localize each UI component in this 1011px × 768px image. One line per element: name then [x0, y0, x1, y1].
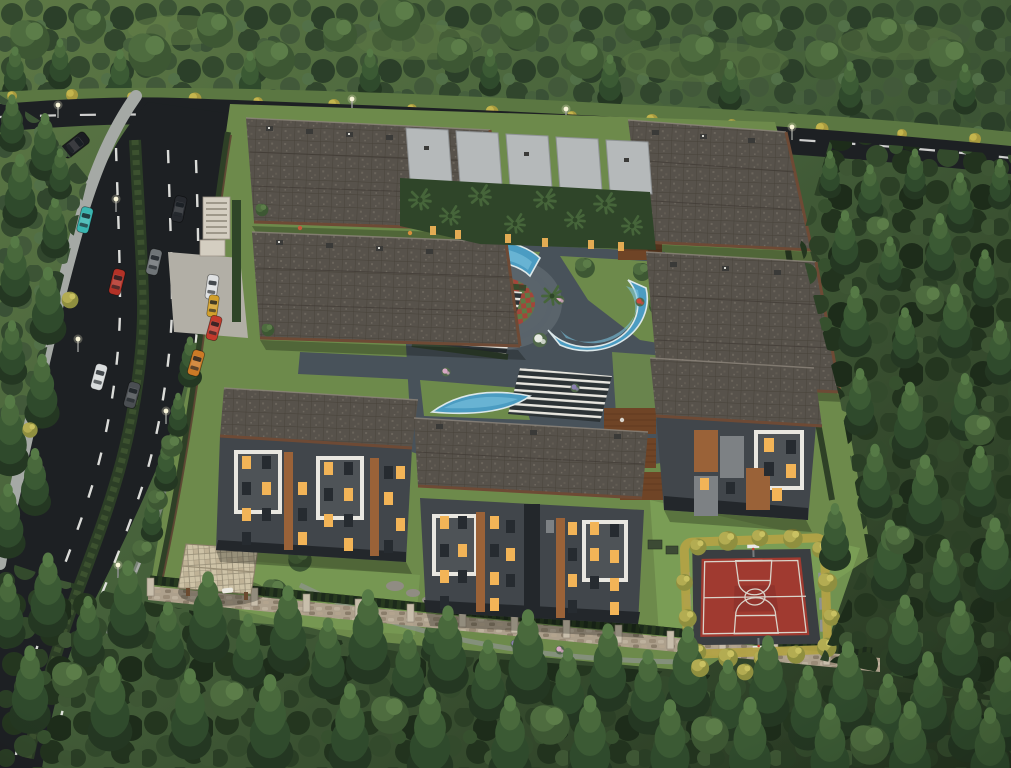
- aerial-render: [0, 0, 1011, 768]
- render-stage: [0, 0, 1011, 768]
- vignette: [0, 0, 1011, 768]
